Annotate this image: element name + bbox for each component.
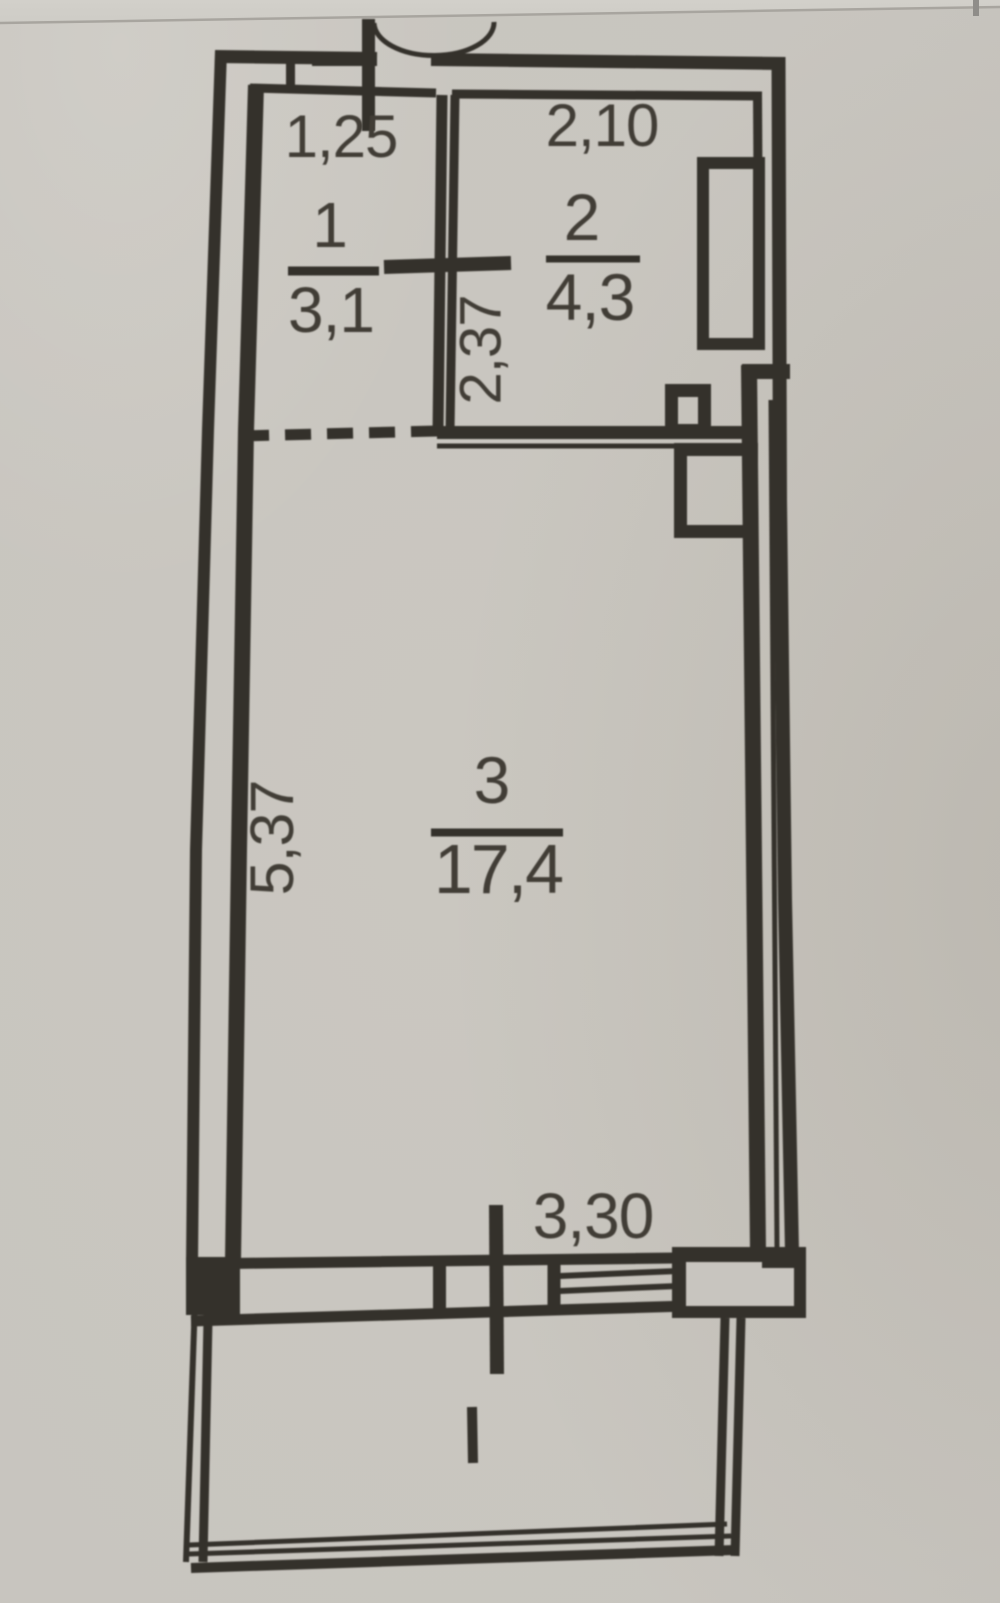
svg-text:3: 3 [474, 743, 511, 817]
svg-text:3,1: 3,1 [288, 274, 374, 346]
svg-text:2: 2 [564, 180, 601, 254]
svg-text:17,4: 17,4 [434, 830, 562, 908]
svg-text:3,30: 3,30 [533, 1180, 654, 1252]
svg-text:4,3: 4,3 [546, 260, 635, 334]
svg-text:5,37: 5,37 [238, 781, 306, 896]
svg-text:2,37: 2,37 [448, 296, 513, 405]
svg-text:1: 1 [312, 189, 348, 261]
svg-text:1,25: 1,25 [285, 103, 398, 170]
svg-text:2,10: 2,10 [546, 92, 659, 159]
